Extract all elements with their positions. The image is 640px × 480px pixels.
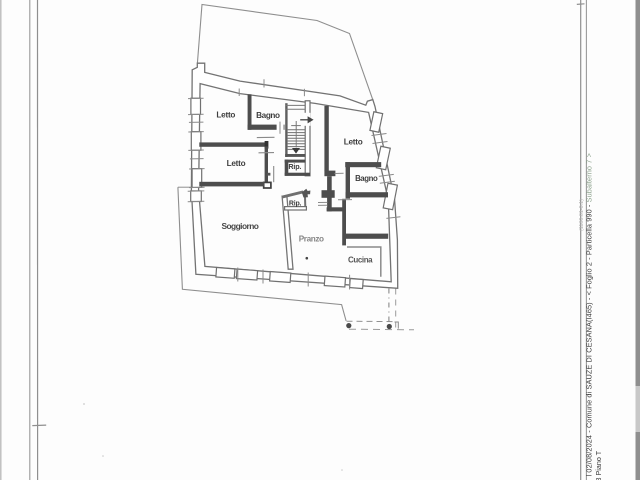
svg-text:Rip.: Rip. — [289, 200, 302, 207]
svg-text:Rip.: Rip. — [288, 162, 301, 171]
svg-text:Pranzo: Pranzo — [299, 235, 324, 244]
svg-text:l 02/08/2024 - Comune di SAUZE: l 02/08/2024 - Comune di SAUZE DI CESANA… — [585, 153, 594, 476]
svg-text:Soggiorno: Soggiorno — [221, 221, 258, 231]
svg-text:(1180.01-0.1): (1180.01-0.1) — [579, 199, 585, 231]
svg-text:Cucina: Cucina — [348, 255, 373, 264]
svg-text:Bagno: Bagno — [256, 111, 280, 120]
svg-text:3 Piano T: 3 Piano T — [594, 450, 603, 480]
svg-text:Letto: Letto — [227, 159, 246, 168]
svg-text:Letto: Letto — [216, 111, 235, 120]
svg-text:Bagno: Bagno — [355, 174, 378, 183]
svg-text:Letto: Letto — [344, 137, 363, 146]
